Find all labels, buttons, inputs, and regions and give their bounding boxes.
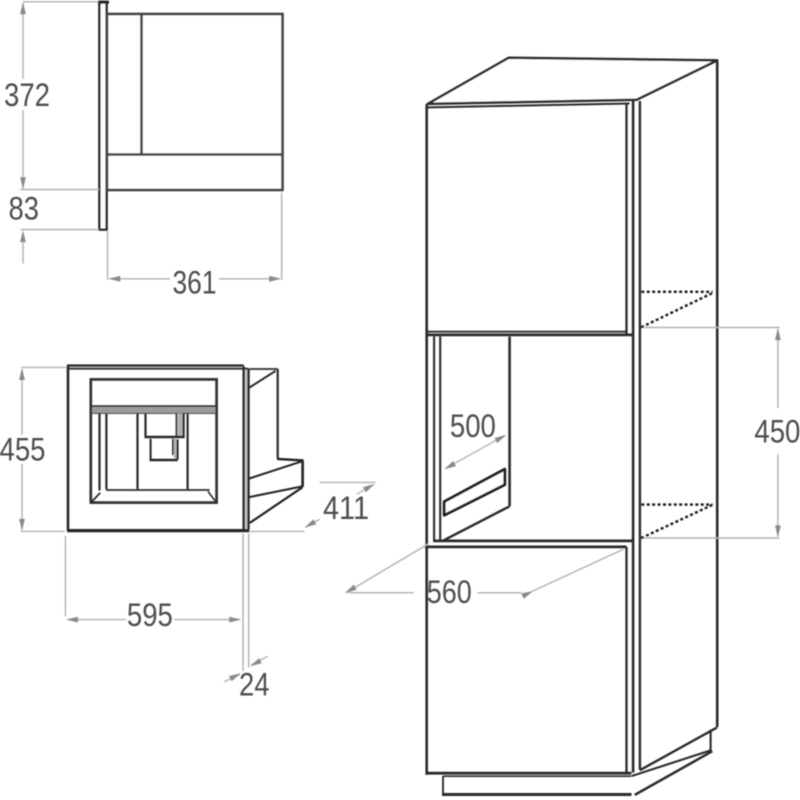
svg-text:500: 500 [450, 408, 496, 444]
svg-text:595: 595 [127, 597, 173, 633]
svg-text:455: 455 [0, 432, 46, 468]
svg-text:372: 372 [4, 77, 50, 113]
svg-text:24: 24 [239, 666, 270, 702]
svg-text:83: 83 [9, 191, 40, 227]
svg-text:411: 411 [323, 490, 369, 526]
svg-text:361: 361 [173, 265, 217, 301]
svg-text:560: 560 [427, 574, 472, 610]
svg-text:450: 450 [754, 414, 800, 450]
